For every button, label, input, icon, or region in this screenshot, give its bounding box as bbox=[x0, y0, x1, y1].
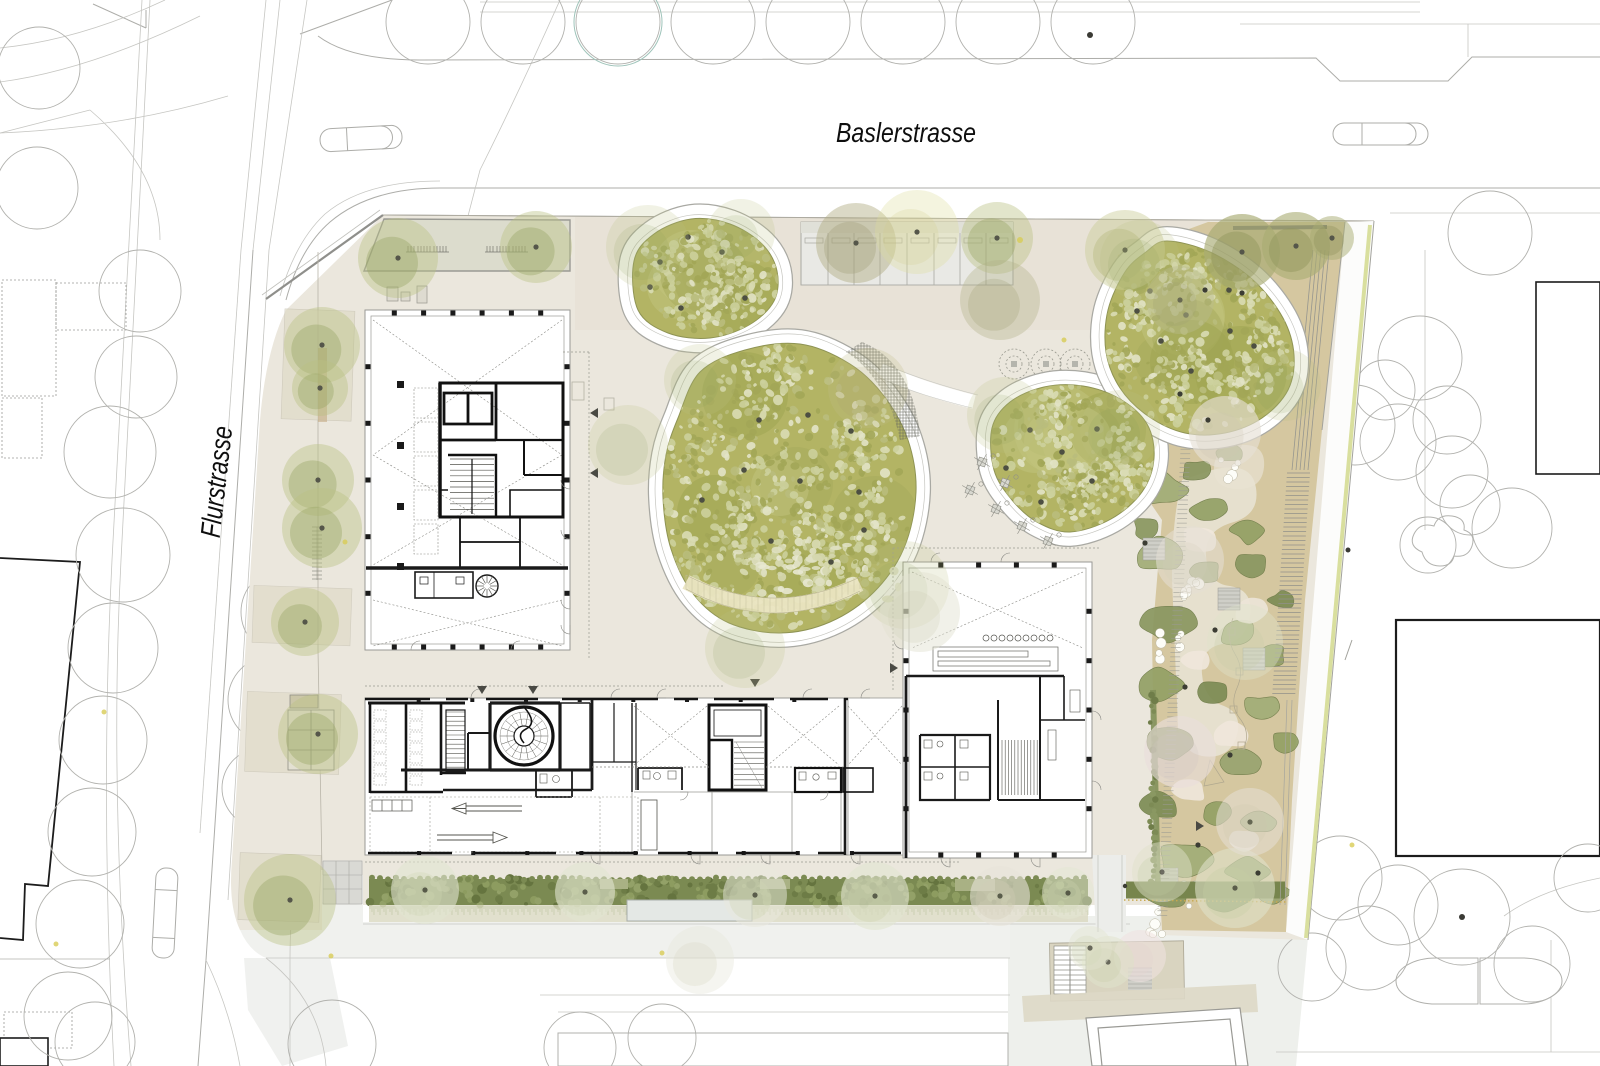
svg-text:Baslerstrasse: Baslerstrasse bbox=[836, 117, 976, 148]
svg-text:Flurstrasse: Flurstrasse bbox=[195, 424, 238, 539]
